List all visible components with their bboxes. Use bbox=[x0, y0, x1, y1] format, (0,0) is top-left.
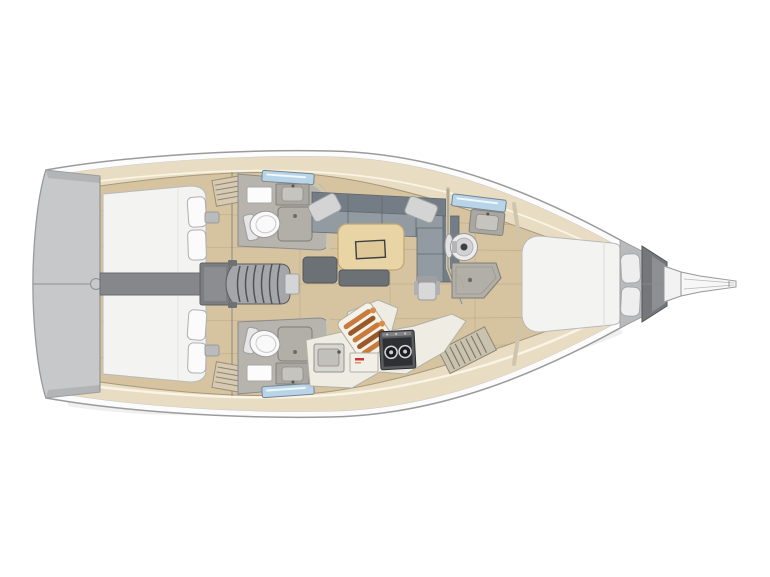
starboard-aft-pillow-1 bbox=[187, 309, 207, 340]
logo-mark-2 bbox=[355, 362, 361, 364]
forward-pillow-2 bbox=[620, 287, 640, 317]
starboard-head-mirror bbox=[247, 365, 272, 381]
floor-plan: Sailing yacht interior floor plan (top-d… bbox=[0, 0, 770, 577]
table-side-bench bbox=[339, 270, 389, 286]
forward-head-sink bbox=[469, 209, 505, 235]
canvas: Sailing yacht interior floor plan (top-d… bbox=[0, 0, 770, 577]
starboard-head-sink bbox=[276, 363, 309, 384]
starboard-head-drain bbox=[293, 350, 297, 354]
faucet bbox=[292, 185, 295, 188]
port-head-drain bbox=[293, 214, 297, 218]
port-head-mirror bbox=[247, 187, 272, 203]
port-aft-nightstand bbox=[205, 212, 219, 223]
steps-landing bbox=[285, 274, 299, 294]
table-end-bench bbox=[303, 257, 337, 283]
stove bbox=[379, 330, 416, 370]
forward-head-basin bbox=[451, 234, 478, 261]
table-recessed-tray bbox=[356, 240, 386, 258]
galley-locker-panel bbox=[350, 353, 378, 372]
starboard-aft-pillow-2 bbox=[187, 343, 206, 374]
forward-pillow-1 bbox=[620, 253, 640, 283]
faucet bbox=[292, 381, 295, 384]
engine-tunnel bbox=[100, 273, 204, 295]
port-aft-pillow-1 bbox=[187, 196, 207, 227]
red-logo-mark bbox=[355, 358, 364, 361]
port-aft-pillow-2 bbox=[187, 230, 206, 261]
steps-base bbox=[226, 264, 290, 304]
sofa-chaise-seat bbox=[417, 228, 443, 282]
bowsprit-body bbox=[681, 272, 736, 296]
engine-box-lid bbox=[204, 267, 226, 301]
starboard-aft-nightstand bbox=[205, 345, 219, 356]
companionway-steps bbox=[226, 260, 299, 308]
faucet bbox=[337, 350, 341, 354]
forward-head-drain bbox=[468, 278, 472, 282]
bow-plate bbox=[664, 266, 681, 302]
port-head-shower-pan bbox=[278, 207, 312, 241]
nav-stool bbox=[414, 276, 440, 300]
steps-handhold-top bbox=[228, 260, 237, 266]
galley-sink bbox=[314, 344, 344, 372]
forward-bed bbox=[522, 236, 620, 332]
steps-handhold-bottom bbox=[228, 302, 237, 308]
swim-platform bbox=[33, 170, 102, 398]
forward-cabin bbox=[522, 236, 642, 332]
port-head-sink bbox=[276, 184, 309, 205]
